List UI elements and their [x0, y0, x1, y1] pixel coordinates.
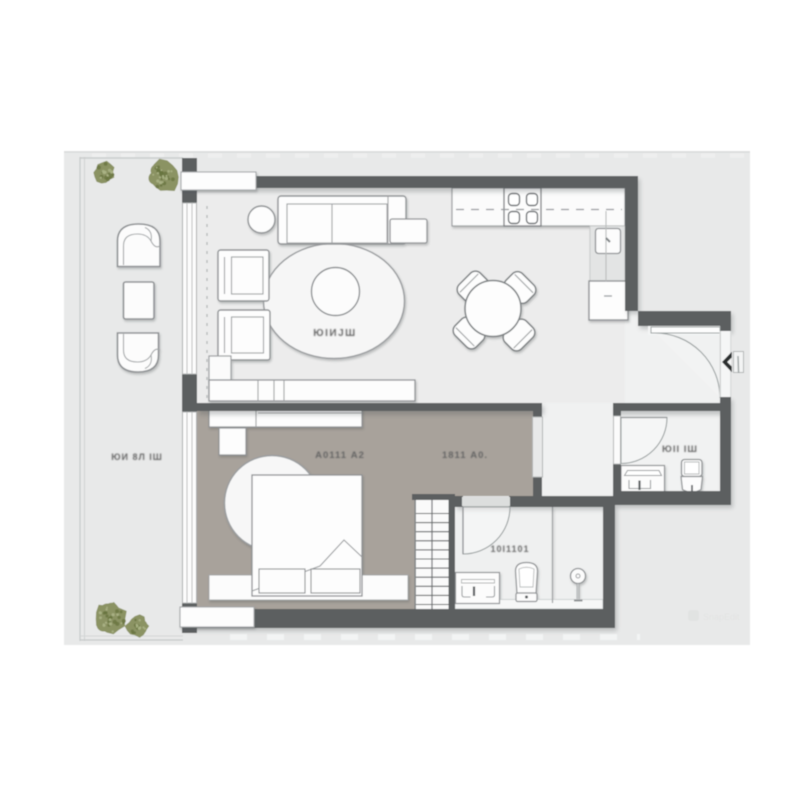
svg-text:ЮІІ ІШ: ЮІІ ІШ — [662, 444, 698, 455]
svg-text:10І1101: 10І1101 — [490, 544, 529, 554]
svg-text:ЮІИЈШ: ЮІИЈШ — [313, 328, 356, 339]
svg-text:1811 А0.: 1811 А0. — [442, 450, 488, 461]
svg-text:А0111 А2: А0111 А2 — [315, 450, 365, 461]
svg-text:SnapEdit: SnapEdit — [703, 612, 740, 622]
svg-text:ЮИ 8Л ІШ: ЮИ 8Л ІШ — [111, 452, 163, 462]
